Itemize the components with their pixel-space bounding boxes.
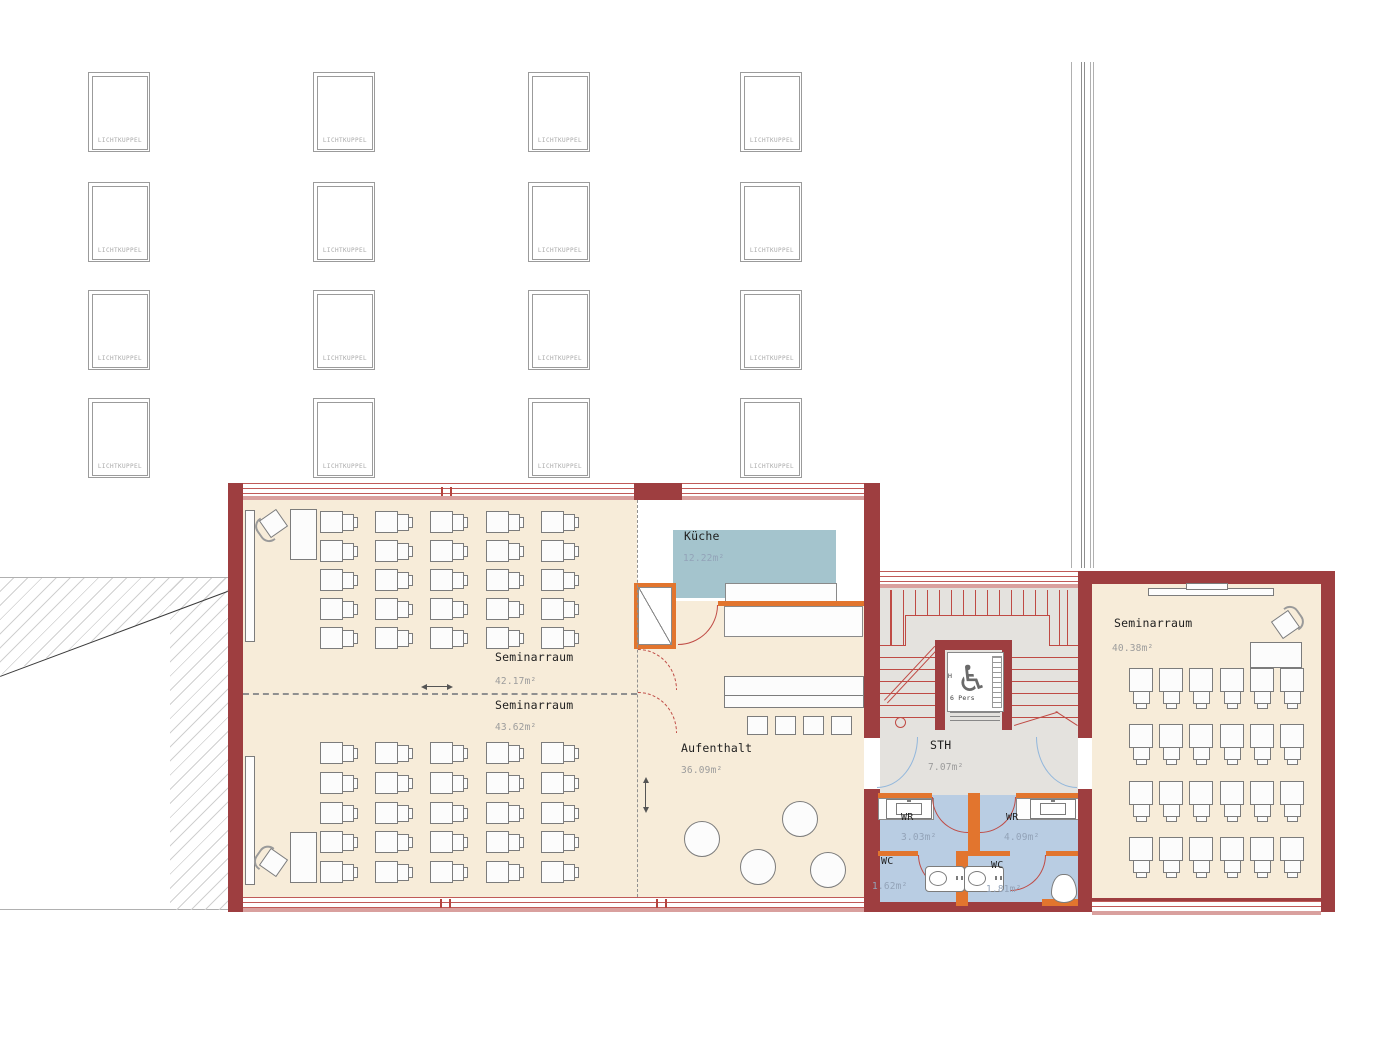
room-area-wc-right: 1.81m² — [986, 884, 1022, 895]
room-label-seminar2: Seminarraum — [495, 698, 573, 712]
skylight-frame: LICHTKUPPEL — [744, 186, 800, 260]
room-area-wr-right: 4.09m² — [1004, 832, 1040, 843]
desk — [486, 540, 509, 562]
skylight-label: LICHTKUPPEL — [318, 137, 372, 144]
desk — [1250, 781, 1274, 805]
skylight: LICHTKUPPEL — [313, 290, 375, 370]
service-shaft — [634, 583, 676, 649]
desk — [1220, 724, 1244, 748]
desk — [541, 511, 564, 533]
skylight-label: LICHTKUPPEL — [93, 137, 147, 144]
skylight-label: LICHTKUPPEL — [93, 247, 147, 254]
window-band-north — [243, 483, 864, 500]
room-area-kitchen: 12.22m² — [683, 553, 724, 564]
skylight: LICHTKUPPEL — [313, 72, 375, 152]
room-area-wc-left: 1.62m² — [872, 881, 908, 892]
desk — [320, 511, 343, 533]
desk — [430, 627, 453, 649]
desk — [1280, 837, 1304, 861]
mullion — [449, 899, 451, 908]
skylight-frame: LICHTKUPPEL — [92, 186, 148, 260]
skylight-label: LICHTKUPPEL — [318, 463, 372, 470]
skylight-label: LICHTKUPPEL — [745, 247, 799, 254]
skylight: LICHTKUPPEL — [740, 182, 802, 262]
desk — [1250, 724, 1274, 748]
desk — [486, 569, 509, 591]
desk — [430, 742, 453, 764]
whiteboard-seminar-2 — [245, 756, 255, 885]
mullion — [440, 899, 442, 908]
skylight: LICHTKUPPEL — [88, 72, 150, 152]
desk — [320, 569, 343, 591]
desk — [486, 831, 509, 853]
desk — [320, 831, 343, 853]
desk — [541, 802, 564, 824]
skylight: LICHTKUPPEL — [528, 398, 590, 478]
urinal — [1051, 874, 1077, 903]
movable-partition-horizontal — [243, 693, 637, 695]
whiteboard-tray-seminar-3 — [1186, 583, 1228, 590]
skylight-label: LICHTKUPPEL — [318, 247, 372, 254]
skylight: LICHTKUPPEL — [528, 290, 590, 370]
desk — [1220, 837, 1244, 861]
skylight-label: LICHTKUPPEL — [533, 247, 587, 254]
skylight: LICHTKUPPEL — [528, 182, 590, 262]
desk — [320, 802, 343, 824]
wall-west — [228, 483, 243, 912]
desk — [375, 831, 398, 853]
room-area-seminar3: 40.38m² — [1112, 643, 1153, 654]
skylight-frame: LICHTKUPPEL — [532, 76, 588, 150]
service-shaft-hatch — [638, 587, 672, 645]
desk — [1189, 837, 1213, 861]
lounge-long-table — [724, 676, 864, 708]
stool — [747, 716, 768, 735]
desk — [375, 742, 398, 764]
skylight-label: LICHTKUPPEL — [93, 355, 147, 362]
mullion — [656, 899, 658, 908]
desk — [486, 802, 509, 824]
desk — [486, 861, 509, 883]
room-label-wr-right: WR — [1006, 812, 1018, 823]
round-table — [740, 849, 776, 885]
desk — [541, 598, 564, 620]
skylight: LICHTKUPPEL — [88, 290, 150, 370]
sanitary-wall — [878, 793, 932, 798]
desk — [320, 598, 343, 620]
skylight: LICHTKUPPEL — [88, 398, 150, 478]
desk — [320, 861, 343, 883]
desk — [1250, 668, 1274, 692]
elevator-counterweight — [992, 656, 1002, 708]
desk — [486, 511, 509, 533]
desk — [1220, 781, 1244, 805]
kitchen-island-counter — [724, 606, 863, 637]
skylight-frame: LICHTKUPPEL — [317, 76, 373, 150]
room-area-wr-left: 3.03m² — [901, 832, 937, 843]
skylight-label: LICHTKUPPEL — [533, 463, 587, 470]
desk — [486, 627, 509, 649]
desk — [430, 802, 453, 824]
skylight: LICHTKUPPEL — [740, 290, 802, 370]
desk — [541, 569, 564, 591]
skylight-label: LICHTKUPPEL — [93, 463, 147, 470]
desk — [375, 540, 398, 562]
skylight-label: LICHTKUPPEL — [318, 355, 372, 362]
skylight: LICHTKUPPEL — [528, 72, 590, 152]
room-label-stairhall: STH — [930, 738, 951, 752]
skylight-label: LICHTKUPPEL — [745, 137, 799, 144]
wheelchair-icon: ♿ — [956, 662, 988, 698]
desk — [1189, 781, 1213, 805]
room-label-wr-left: WR — [901, 812, 913, 823]
elevator-door — [950, 712, 1000, 724]
stool — [831, 716, 852, 735]
mullion — [450, 487, 452, 496]
desk — [430, 861, 453, 883]
skylight-frame: LICHTKUPPEL — [532, 294, 588, 368]
window-band-stair — [880, 571, 1078, 588]
room-label-kitchen: Küche — [684, 529, 720, 543]
desk — [375, 802, 398, 824]
desk — [430, 831, 453, 853]
door-opening-seminar3 — [1078, 738, 1092, 789]
round-table — [684, 821, 720, 857]
hatch-slope-side — [170, 578, 228, 910]
desk — [1280, 668, 1304, 692]
parapet-line — [1071, 62, 1072, 568]
teacher-desk-seminar-3 — [1250, 642, 1302, 668]
desk — [1159, 668, 1183, 692]
teacher-desk-seminar-2 — [290, 832, 317, 883]
skylight-frame: LICHTKUPPEL — [532, 402, 588, 476]
round-table — [810, 852, 846, 888]
skylight: LICHTKUPPEL — [313, 182, 375, 262]
desk — [1159, 781, 1183, 805]
skylight-label: LICHTKUPPEL — [745, 463, 799, 470]
desk — [486, 598, 509, 620]
skylight-frame: LICHTKUPPEL — [92, 294, 148, 368]
desk — [375, 511, 398, 533]
desk — [320, 540, 343, 562]
stool — [803, 716, 824, 735]
elevator-capacity-label: 6 Pers — [950, 694, 975, 702]
desk — [541, 772, 564, 794]
room-label-seminar3: Seminarraum — [1114, 616, 1192, 630]
sanitary-wall — [1016, 793, 1078, 798]
sanitary-wall-divider-upper — [968, 793, 980, 855]
whiteboard-seminar-1 — [245, 510, 255, 642]
desk — [1220, 668, 1244, 692]
desk — [1129, 724, 1153, 748]
desk — [320, 742, 343, 764]
window-band-seminar3-south — [1092, 898, 1321, 915]
desk — [430, 772, 453, 794]
desk — [320, 772, 343, 794]
wall-east-upper — [864, 483, 880, 738]
desk — [430, 598, 453, 620]
desk — [1280, 724, 1304, 748]
desk — [430, 569, 453, 591]
skylight-frame: LICHTKUPPEL — [317, 294, 373, 368]
skylight-frame: LICHTKUPPEL — [744, 294, 800, 368]
desk — [1159, 724, 1183, 748]
stair-start-post — [895, 717, 906, 728]
parapet-line — [1081, 62, 1082, 568]
sanitary-wall — [956, 851, 1010, 856]
room-area-seminar1: 42.17m² — [495, 676, 536, 687]
desk — [486, 772, 509, 794]
parapet-line — [1093, 62, 1094, 568]
desk — [375, 598, 398, 620]
skylight-frame: LICHTKUPPEL — [317, 186, 373, 260]
skylight: LICHTKUPPEL — [88, 182, 150, 262]
mullion — [441, 487, 443, 496]
desk — [1159, 837, 1183, 861]
skylight: LICHTKUPPEL — [740, 398, 802, 478]
desk — [1189, 668, 1213, 692]
room-area-lounge: 36.09m² — [681, 765, 722, 776]
skylight-frame: LICHTKUPPEL — [92, 76, 148, 150]
skylight: LICHTKUPPEL — [740, 72, 802, 152]
skylight-label: LICHTKUPPEL — [533, 137, 587, 144]
room-label-seminar1: Seminarraum — [495, 650, 573, 664]
desk — [541, 540, 564, 562]
toilet-left — [925, 866, 965, 892]
desk — [541, 861, 564, 883]
desk — [375, 627, 398, 649]
desk — [430, 511, 453, 533]
elevator-side-label: H — [948, 672, 952, 680]
elevator-shaft-wall — [935, 640, 945, 730]
skylight-label: LICHTKUPPEL — [745, 355, 799, 362]
window-band-south — [243, 897, 864, 912]
desk — [1189, 724, 1213, 748]
wall-pier-north — [634, 483, 682, 500]
desk — [375, 772, 398, 794]
partition-slide-arrow-horizontal — [424, 686, 450, 687]
desk — [541, 831, 564, 853]
desk — [486, 742, 509, 764]
stool — [775, 716, 796, 735]
desk — [1280, 781, 1304, 805]
parapet-line — [1090, 62, 1091, 568]
partition-slide-arrow-vertical — [645, 780, 646, 810]
desk — [541, 742, 564, 764]
room-label-wc-left: WC — [881, 856, 893, 867]
wall-seminar3-east — [1321, 571, 1335, 912]
kitchen-counter — [725, 583, 837, 602]
washbasin-right — [1030, 799, 1076, 819]
parapet-line — [1084, 62, 1085, 568]
desk — [430, 540, 453, 562]
teacher-desk-seminar-1 — [290, 509, 317, 560]
round-table — [782, 801, 818, 837]
mullion — [665, 899, 667, 908]
skylight-frame: LICHTKUPPEL — [532, 186, 588, 260]
room-label-lounge: Aufenthalt — [681, 741, 752, 755]
desk — [1129, 781, 1153, 805]
desk — [1250, 837, 1274, 861]
skylight-frame: LICHTKUPPEL — [744, 76, 800, 150]
room-area-seminar2: 43.62m² — [495, 722, 536, 733]
desk — [1129, 837, 1153, 861]
room-label-wc-right: WC — [991, 860, 1003, 871]
room-area-stairhall: 7.07m² — [928, 762, 964, 773]
sanitary-wall — [1046, 851, 1078, 856]
skylight-frame: LICHTKUPPEL — [92, 402, 148, 476]
elevator-shaft-wall — [935, 640, 1012, 650]
desk — [375, 569, 398, 591]
skylight-frame: LICHTKUPPEL — [317, 402, 373, 476]
skylight: LICHTKUPPEL — [313, 398, 375, 478]
desk — [320, 627, 343, 649]
floor-plan-canvas: ♿ 6 Pers H — [0, 0, 1397, 1055]
skylight-frame: LICHTKUPPEL — [744, 402, 800, 476]
skylight-label: LICHTKUPPEL — [533, 355, 587, 362]
desk — [1129, 668, 1153, 692]
desk — [375, 861, 398, 883]
desk — [541, 627, 564, 649]
